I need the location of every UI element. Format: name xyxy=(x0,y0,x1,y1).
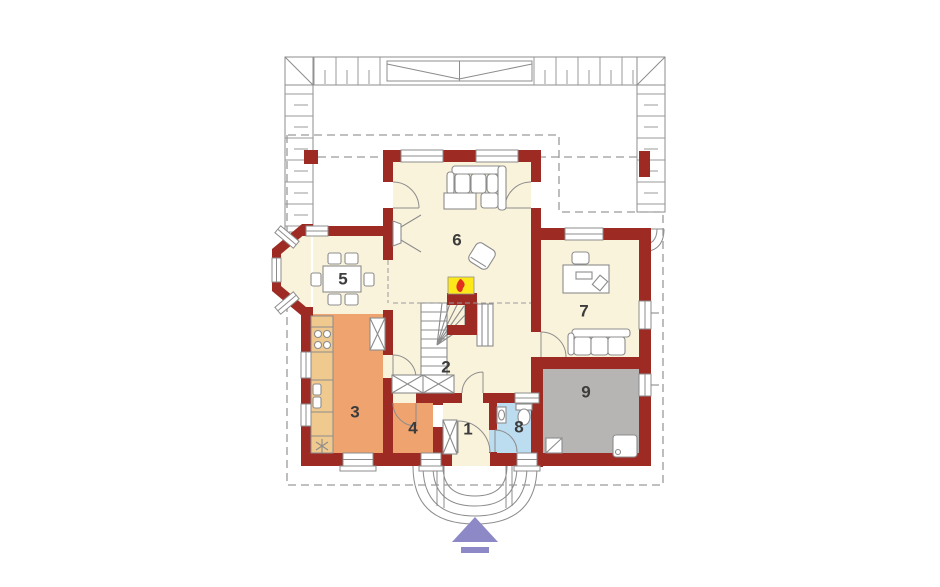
chair xyxy=(328,294,341,305)
kitchen-counter xyxy=(311,316,333,453)
window-sill xyxy=(340,466,376,471)
room-label-4: 4 xyxy=(408,420,417,437)
floor-drain xyxy=(546,438,562,453)
window-sill xyxy=(514,466,540,471)
deck-hatch xyxy=(637,85,665,212)
terrace-pillar xyxy=(639,151,650,177)
room-label-8: 8 xyxy=(514,419,523,436)
window-sill xyxy=(419,466,443,471)
room-label-1: 1 xyxy=(463,421,472,438)
pergola-beam xyxy=(387,61,532,81)
porch-steps xyxy=(413,466,537,524)
room-label-7: 7 xyxy=(579,303,588,320)
chair xyxy=(345,253,358,264)
fireplace xyxy=(448,277,474,294)
boiler xyxy=(613,435,637,457)
room-label-2: 2 xyxy=(441,359,450,376)
office-chair xyxy=(572,252,589,264)
chair xyxy=(364,273,374,286)
deck-hatch xyxy=(532,57,637,85)
room-label-9: 9 xyxy=(581,384,590,401)
room-label-6: 6 xyxy=(452,232,461,249)
room-label-5: 5 xyxy=(338,271,347,288)
hall-closet xyxy=(392,375,454,393)
floor-plan-canvas xyxy=(0,0,940,587)
chair xyxy=(311,273,321,286)
chair xyxy=(345,294,358,305)
laptop xyxy=(576,272,592,279)
coffee-table xyxy=(444,193,476,209)
room-label-3: 3 xyxy=(350,404,359,421)
deck-hatch xyxy=(313,57,387,85)
floor-plan: 1 2 3 4 5 6 7 8 9 xyxy=(0,0,940,587)
terrace-pillar xyxy=(304,150,318,164)
office-sofa xyxy=(568,329,630,355)
chair xyxy=(328,253,341,264)
wardrobe xyxy=(443,420,457,454)
closet xyxy=(370,318,385,350)
washbasin xyxy=(497,407,506,423)
